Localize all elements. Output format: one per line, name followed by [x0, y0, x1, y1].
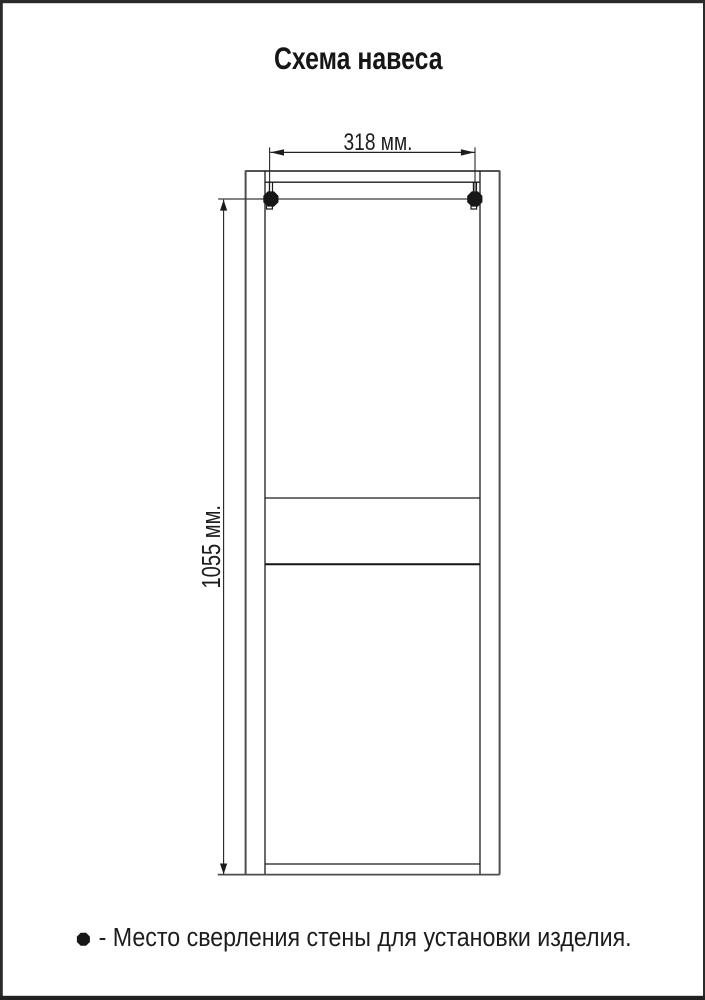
svg-text:318 мм.: 318 мм. — [344, 129, 413, 156]
svg-text:1055 мм.: 1055 мм. — [198, 505, 226, 589]
svg-text:Схема навеса: Схема навеса — [274, 40, 443, 76]
svg-text:- Место сверления стены для ус: - Место сверления стены для установки из… — [99, 924, 632, 952]
